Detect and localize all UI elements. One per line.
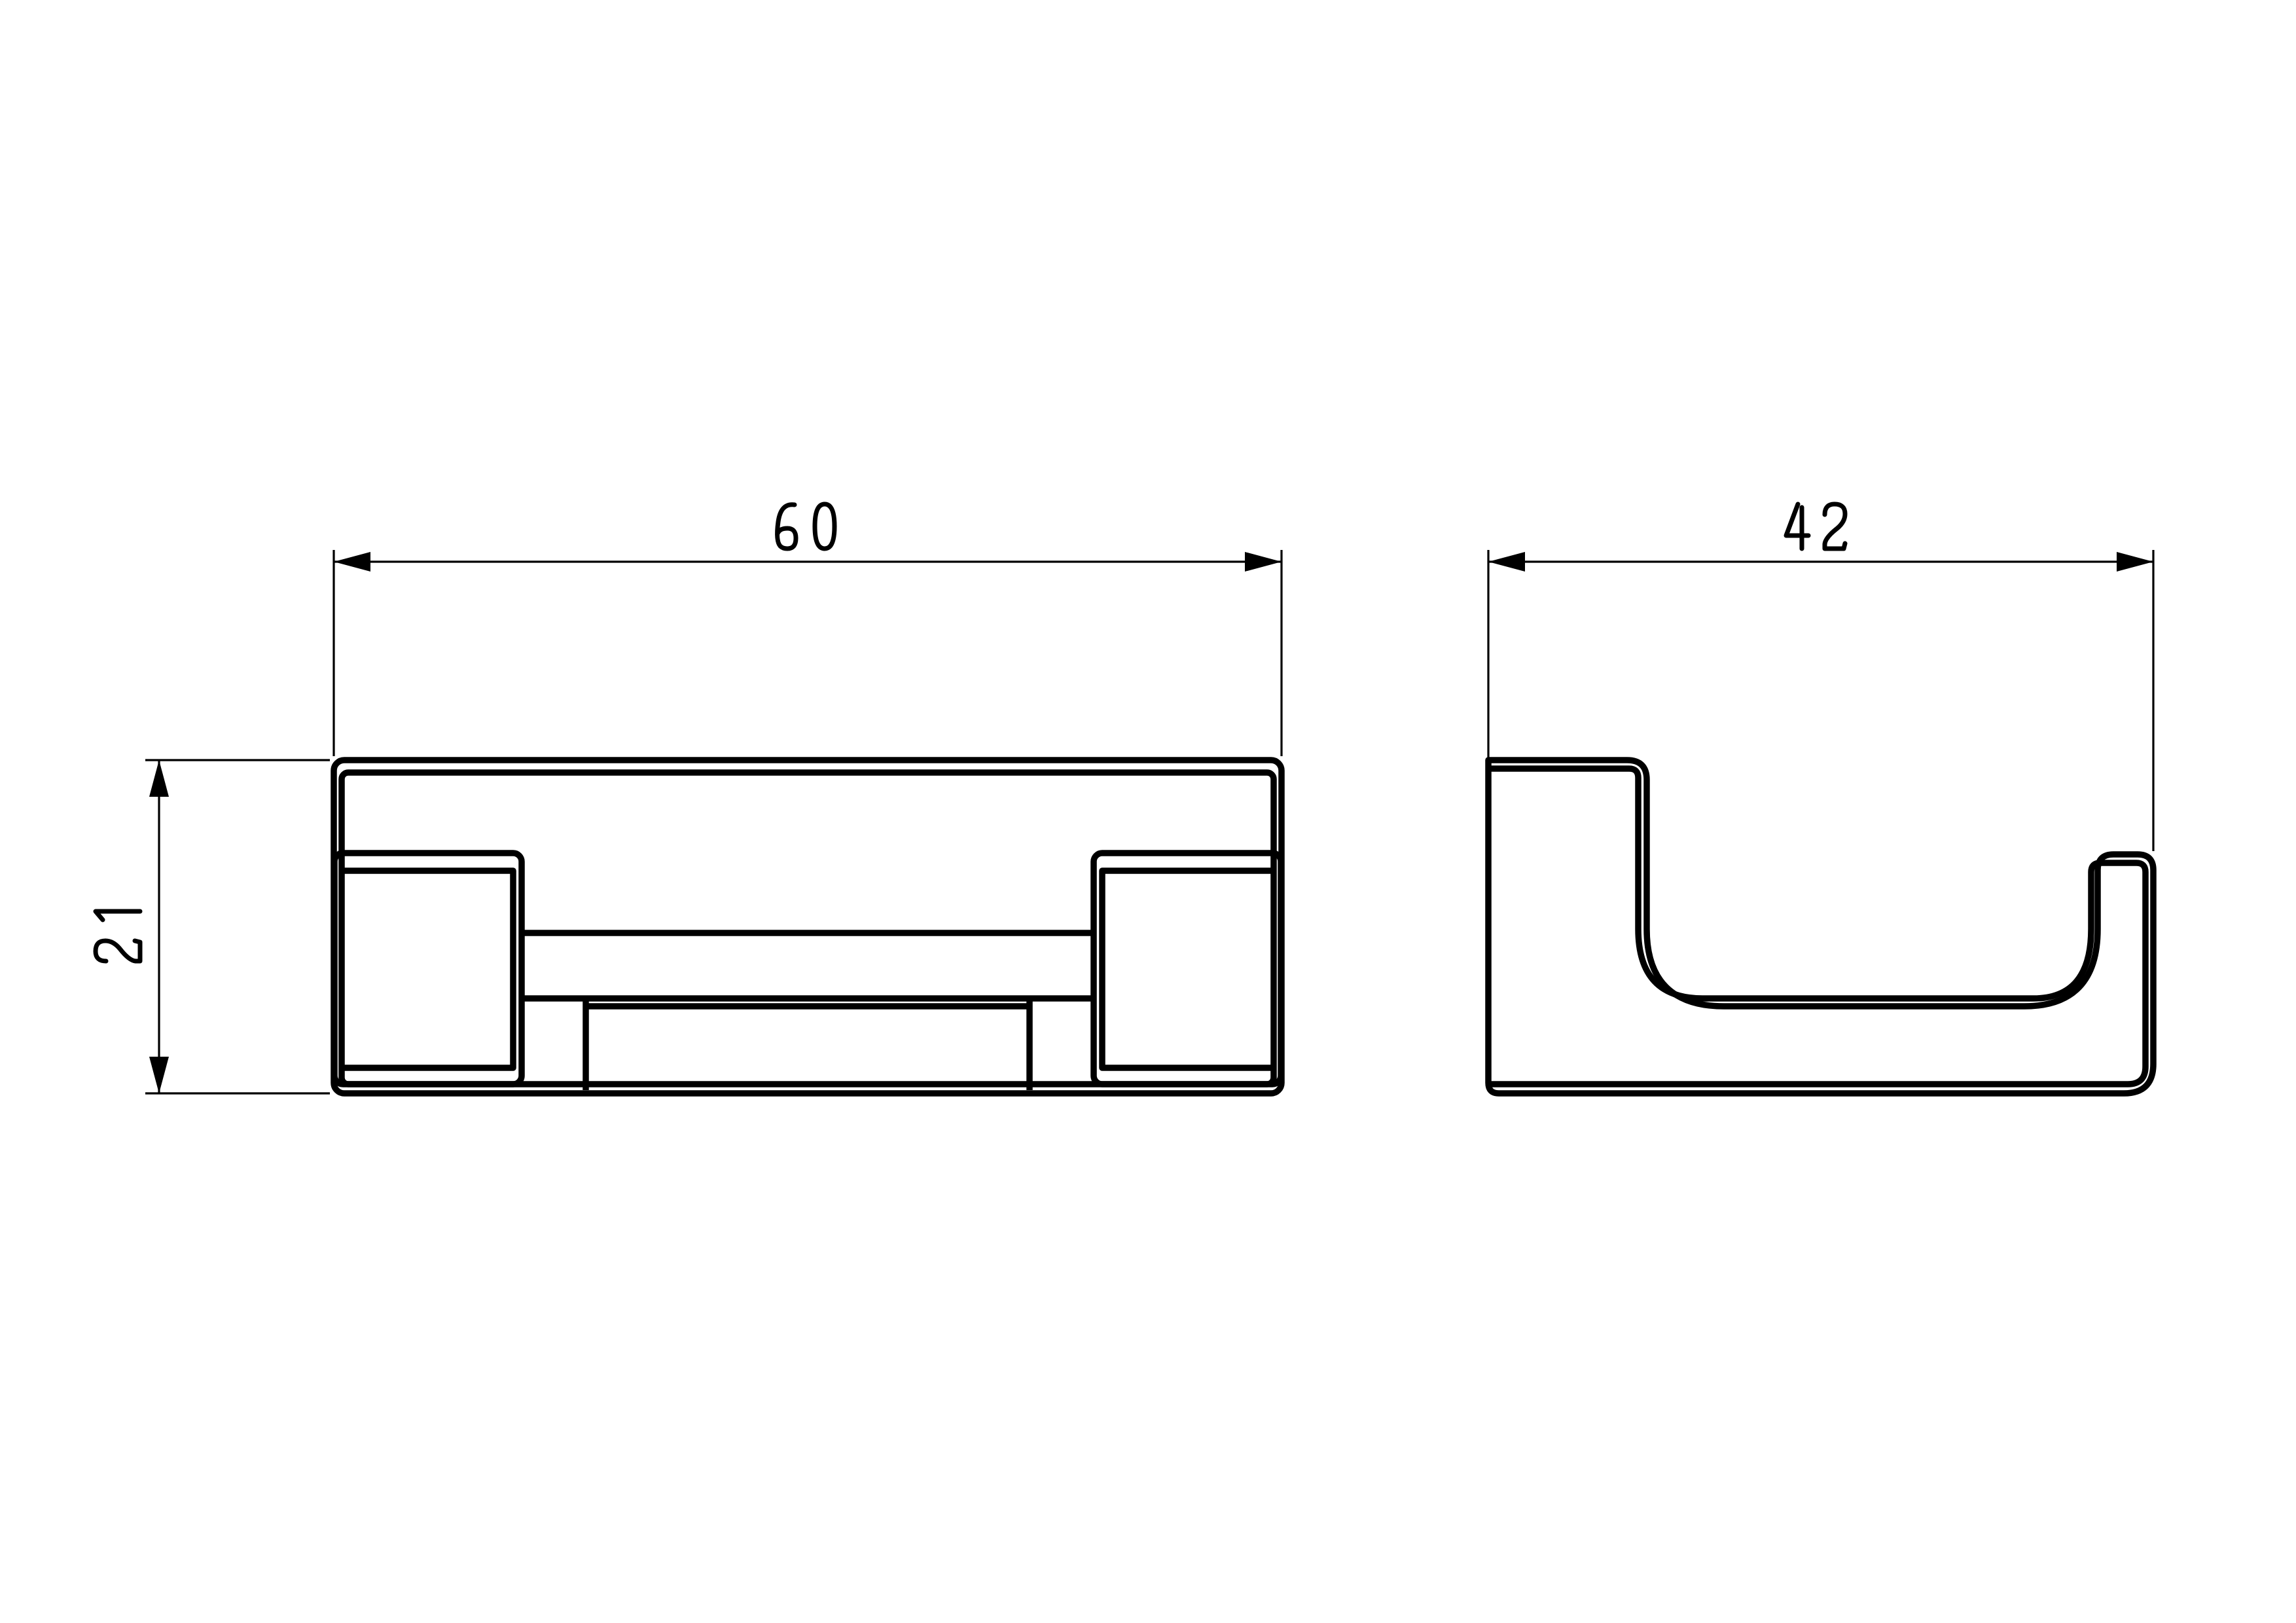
dim-width-arrow-right [1245, 552, 1282, 572]
dim-depth [1488, 504, 2153, 851]
dim-digit-6 [778, 505, 796, 549]
dim-height-arrow-top [149, 760, 169, 797]
dim-digit-2 [1825, 504, 1845, 549]
side-outer-outline [1488, 760, 2153, 1093]
dim-depth-label [1786, 504, 1845, 549]
dim-digit-0 [815, 504, 834, 549]
dim-width-arrow-left [334, 552, 370, 572]
dim-depth-arrow-left [1488, 552, 1525, 572]
dim-width-label [778, 504, 834, 549]
dim-digit-1 [96, 911, 140, 920]
dim-height-arrow-bottom [149, 1057, 169, 1093]
side-inner-edge-line [1488, 769, 2145, 1084]
right-pad [1094, 853, 1281, 1084]
dim-digit-4 [1786, 504, 1808, 549]
dim-digit-2 [96, 941, 140, 961]
dim-height-label [96, 911, 140, 961]
left-pad-inner-edge [342, 871, 513, 1068]
left-pad [334, 853, 522, 1084]
cad-canvas [0, 0, 2296, 1623]
dim-width [334, 504, 1282, 756]
front-outer-outline [334, 760, 1282, 1093]
front-view [334, 760, 1282, 1093]
drawing-sheet [0, 0, 2296, 1623]
dim-depth-arrow-right [2117, 552, 2153, 572]
dim-height [96, 760, 330, 1093]
front-inner-edge-line [342, 773, 1274, 1084]
side-view [1488, 760, 2153, 1093]
right-pad-inner-edge [1102, 871, 1274, 1068]
